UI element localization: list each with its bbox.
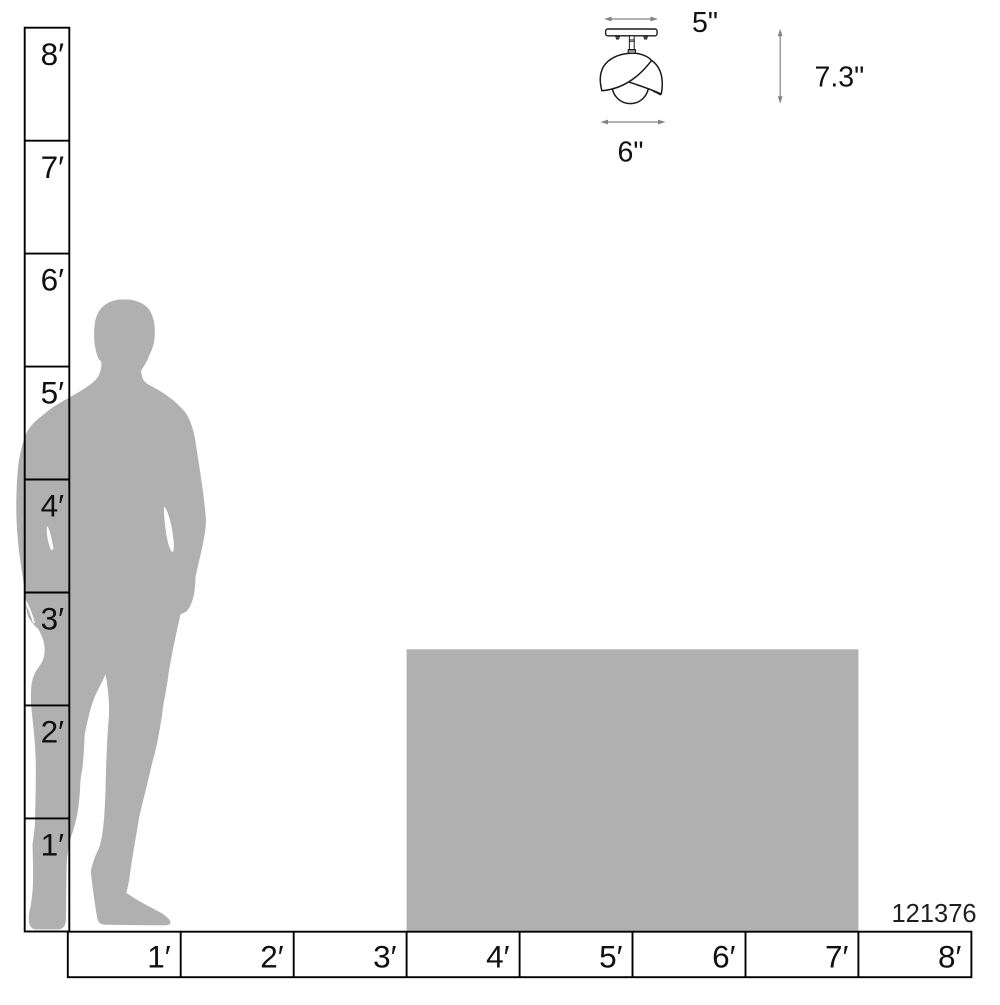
svg-text:2′: 2′ [41, 714, 65, 750]
svg-text:121376: 121376 [892, 900, 977, 928]
svg-text:3′: 3′ [373, 939, 397, 975]
svg-text:4′: 4′ [486, 939, 510, 975]
svg-text:5′: 5′ [41, 375, 65, 411]
svg-text:7.3": 7.3" [815, 61, 865, 93]
svg-text:4′: 4′ [41, 488, 65, 524]
svg-text:2′: 2′ [260, 939, 284, 975]
svg-text:1′: 1′ [41, 827, 65, 863]
svg-text:5′: 5′ [599, 939, 623, 975]
svg-text:6′: 6′ [712, 939, 736, 975]
svg-text:6′: 6′ [41, 262, 65, 298]
svg-text:5": 5" [692, 7, 718, 39]
svg-text:6": 6" [618, 136, 644, 168]
svg-text:1′: 1′ [147, 939, 171, 975]
svg-text:8′: 8′ [938, 939, 962, 975]
svg-text:8′: 8′ [41, 36, 65, 72]
svg-text:3′: 3′ [41, 601, 65, 637]
svg-text:7′: 7′ [825, 939, 849, 975]
svg-text:7′: 7′ [41, 149, 65, 185]
